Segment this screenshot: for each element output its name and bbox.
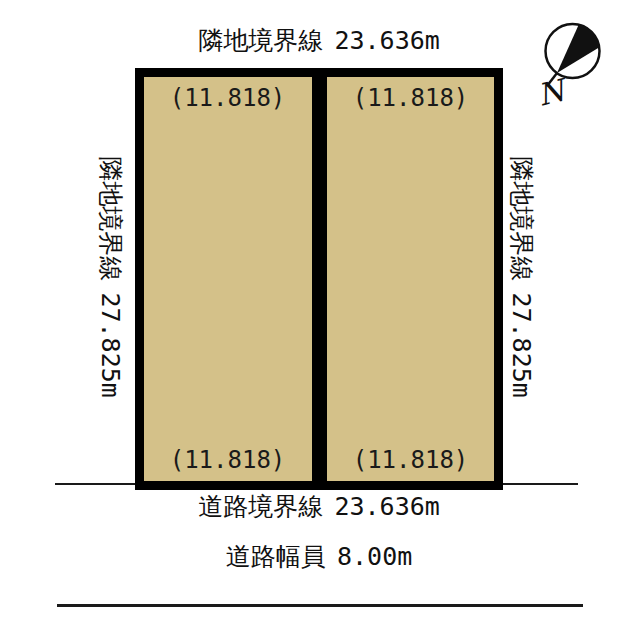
parcel-divider-line: [312, 77, 327, 481]
parcel1-top-dimension: (11.818): [144, 85, 311, 111]
right-boundary-name: 隣地境界線: [507, 156, 536, 281]
parcel2-top-dimension: (11.818): [327, 85, 494, 111]
road-boundary-value: 23.636m: [334, 492, 439, 521]
road-boundary-label: 道路境界線23.636m: [135, 493, 503, 521]
right-boundary-value: 27.825m: [507, 292, 536, 397]
parcel1-bottom-dimension: (11.818): [144, 447, 311, 473]
left-boundary-name: 隣地境界線: [96, 156, 125, 281]
north-compass-icon: N: [538, 14, 610, 110]
top-boundary-value: 23.636m: [334, 26, 439, 55]
site-plan-canvas: 隣地境界線23.636m N (11.818) (11.818) (11.818…: [0, 0, 640, 640]
road-width-name: 道路幅員: [226, 542, 326, 571]
road-width-label: 道路幅員8.00m: [135, 543, 503, 571]
top-boundary-label: 隣地境界線23.636m: [135, 27, 503, 55]
road-boundary-name: 道路境界線: [198, 492, 323, 521]
top-boundary-name: 隣地境界線: [198, 26, 323, 55]
left-boundary-value: 27.825m: [96, 292, 125, 397]
road-width-value: 8.00m: [337, 542, 412, 571]
left-boundary-label: 隣地境界線27.825m: [94, 156, 127, 398]
right-boundary-label: 隣地境界線27.825m: [505, 156, 538, 398]
plot-outline: (11.818) (11.818) (11.818) (11.818): [135, 68, 503, 490]
road-far-edge-line: [57, 604, 583, 607]
parcel2-bottom-dimension: (11.818): [327, 447, 494, 473]
